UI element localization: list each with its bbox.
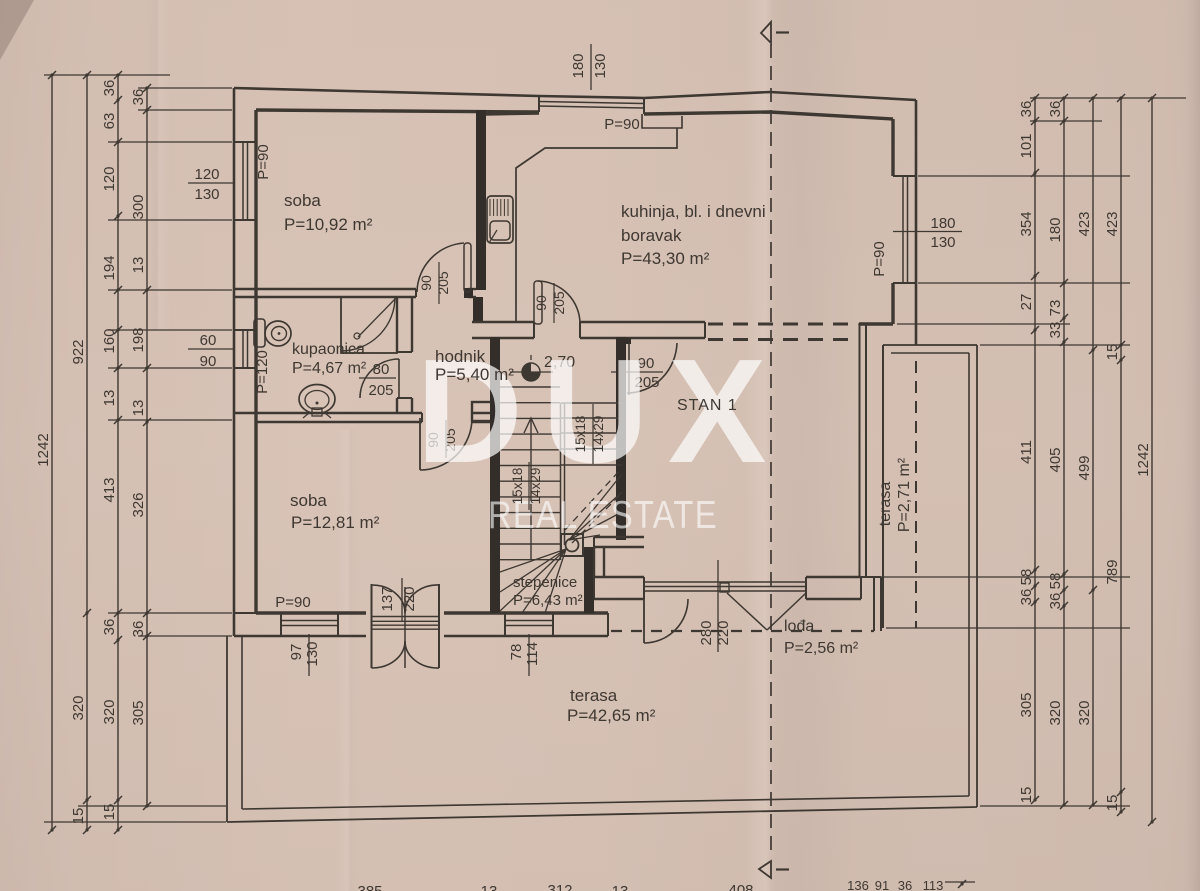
svg-text:kuhinja, bl. i dnevni: kuhinja, bl. i dnevni: [621, 202, 766, 221]
svg-text:hodnik: hodnik: [435, 347, 486, 366]
svg-text:305: 305: [1018, 692, 1035, 717]
svg-text:1242: 1242: [1135, 443, 1152, 476]
svg-text:P=6,43 m²: P=6,43 m²: [513, 592, 583, 609]
svg-text:91: 91: [875, 878, 889, 891]
svg-text:P=10,92 m²: P=10,92 m²: [284, 215, 373, 234]
svg-text:90: 90: [533, 295, 549, 311]
svg-text:354: 354: [1018, 211, 1035, 236]
svg-text:180: 180: [930, 215, 955, 232]
svg-text:P=2,71 m²: P=2,71 m²: [896, 457, 913, 532]
svg-text:194: 194: [101, 255, 118, 280]
svg-text:78: 78: [508, 644, 525, 661]
svg-text:13: 13: [481, 883, 498, 891]
svg-text:90: 90: [200, 353, 217, 370]
svg-text:423: 423: [1076, 211, 1093, 236]
svg-text:326: 326: [130, 492, 147, 517]
svg-text:15: 15: [1104, 795, 1121, 812]
svg-text:1242: 1242: [35, 433, 52, 466]
svg-text:113: 113: [923, 878, 944, 891]
svg-text:120: 120: [194, 166, 219, 183]
svg-text:36: 36: [1018, 589, 1035, 606]
svg-text:180: 180: [570, 53, 587, 78]
svg-text:15x18: 15x18: [573, 416, 588, 453]
svg-text:P=43,30 m²: P=43,30 m²: [621, 249, 710, 268]
svg-text:stepenice: stepenice: [513, 574, 577, 591]
svg-text:73: 73: [1047, 300, 1064, 317]
svg-text:205: 205: [551, 291, 567, 315]
svg-text:P=12,81 m²: P=12,81 m²: [291, 513, 380, 532]
svg-text:101: 101: [1018, 133, 1035, 158]
svg-text:205: 205: [435, 271, 451, 295]
svg-text:STAN 1: STAN 1: [677, 397, 738, 414]
svg-text:kupaonica: kupaonica: [292, 341, 365, 358]
svg-text:80: 80: [373, 361, 390, 378]
svg-text:405: 405: [1047, 447, 1064, 472]
svg-text:114: 114: [524, 642, 541, 666]
svg-text:130: 130: [592, 53, 609, 78]
svg-text:33: 33: [1047, 322, 1064, 339]
svg-text:97: 97: [288, 644, 305, 661]
svg-text:320: 320: [70, 695, 87, 720]
svg-text:36: 36: [130, 621, 147, 638]
svg-text:36: 36: [101, 80, 118, 97]
svg-text:15: 15: [70, 808, 87, 825]
svg-text:P=90: P=90: [275, 594, 310, 611]
svg-text:36: 36: [130, 89, 147, 106]
svg-text:408: 408: [728, 882, 753, 891]
svg-text:P=4,67 m²: P=4,67 m²: [292, 360, 367, 377]
svg-text:280: 280: [698, 620, 715, 645]
svg-text:180: 180: [1047, 217, 1064, 242]
svg-text:terasa: terasa: [570, 686, 618, 705]
svg-text:320: 320: [1076, 700, 1093, 725]
svg-text:385: 385: [357, 883, 382, 891]
svg-text:soba: soba: [284, 191, 321, 210]
svg-text:136: 136: [847, 878, 869, 891]
svg-text:411: 411: [1018, 440, 1035, 464]
svg-text:36: 36: [101, 619, 118, 636]
svg-text:58: 58: [1047, 573, 1064, 590]
svg-text:13: 13: [612, 883, 629, 891]
svg-text:P=120: P=120: [254, 350, 271, 394]
svg-text:130: 130: [304, 641, 321, 666]
svg-text:36: 36: [1047, 593, 1064, 610]
svg-text:15: 15: [1018, 787, 1035, 804]
svg-text:14x29: 14x29: [528, 468, 543, 505]
svg-text:305: 305: [130, 700, 147, 725]
svg-text:P=5,40 m²: P=5,40 m²: [435, 365, 514, 384]
svg-text:413: 413: [101, 477, 118, 502]
svg-text:922: 922: [70, 339, 87, 364]
svg-text:14x29: 14x29: [591, 416, 606, 453]
svg-text:soba: soba: [290, 491, 327, 510]
svg-text:198: 198: [130, 327, 147, 352]
svg-text:36: 36: [898, 878, 912, 891]
svg-text:P=2,56 m²: P=2,56 m²: [784, 640, 859, 657]
svg-text:220: 220: [715, 620, 732, 645]
svg-text:160: 160: [101, 328, 118, 353]
svg-text:13: 13: [130, 400, 147, 417]
svg-text:789: 789: [1104, 559, 1121, 584]
svg-text:boravak: boravak: [621, 226, 682, 245]
svg-text:27: 27: [1018, 294, 1035, 311]
svg-text:320: 320: [1047, 700, 1064, 725]
svg-text:205: 205: [368, 382, 393, 399]
svg-text:90: 90: [418, 275, 434, 291]
svg-text:15x18: 15x18: [510, 468, 525, 505]
svg-text:423: 423: [1104, 211, 1121, 236]
svg-text:63: 63: [101, 113, 118, 130]
svg-text:300: 300: [130, 194, 147, 219]
svg-text:130: 130: [930, 234, 955, 251]
svg-text:P=90: P=90: [871, 241, 888, 276]
svg-text:36: 36: [1047, 101, 1064, 118]
svg-text:312: 312: [547, 882, 572, 891]
svg-text:120: 120: [101, 166, 118, 191]
svg-text:320: 320: [101, 699, 118, 724]
svg-text:220: 220: [401, 586, 418, 611]
svg-text:13: 13: [130, 257, 147, 274]
svg-text:terasa: terasa: [877, 482, 894, 527]
svg-text:36: 36: [1018, 101, 1035, 118]
svg-text:P=42,65 m²: P=42,65 m²: [567, 706, 656, 725]
svg-text:58: 58: [1018, 569, 1035, 586]
svg-text:15: 15: [101, 804, 118, 821]
svg-text:P=90: P=90: [255, 144, 272, 179]
svg-text:lođa: lođa: [784, 618, 814, 635]
svg-text:P=90: P=90: [604, 116, 639, 133]
svg-text:13: 13: [101, 390, 118, 407]
svg-text:499: 499: [1076, 455, 1093, 480]
svg-text:15: 15: [1104, 344, 1121, 361]
svg-text:60: 60: [200, 332, 217, 349]
svg-text:130: 130: [194, 186, 219, 203]
svg-text:137: 137: [379, 586, 396, 611]
